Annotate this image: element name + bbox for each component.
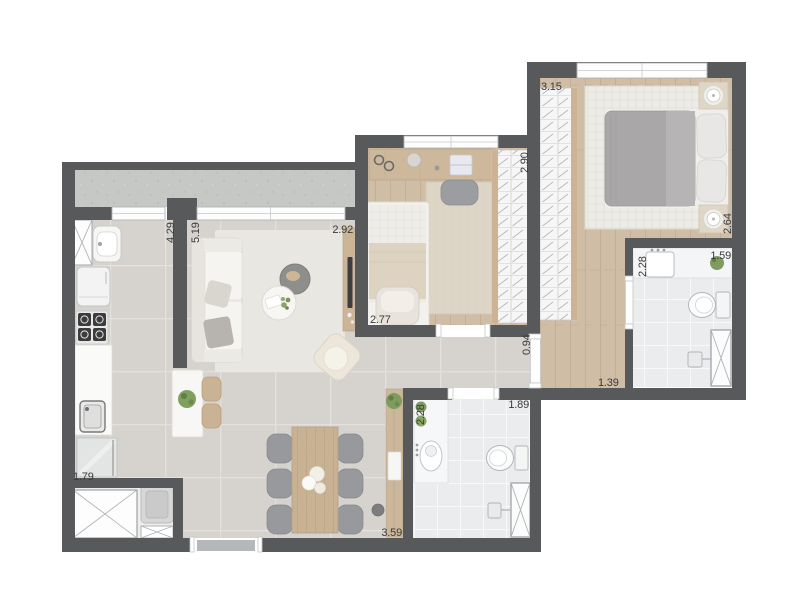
wall-pillar: [167, 198, 197, 220]
dim-master-width: 3.15: [541, 81, 562, 93]
dim-kitchen-width: 1.79: [73, 471, 94, 483]
master-window: [577, 63, 707, 78]
dim-bathroom-depth: 2.28: [415, 404, 427, 425]
shower-mixer-icon: [488, 503, 501, 518]
laundry-fixtures: [73, 484, 173, 538]
pillow: [696, 113, 727, 158]
bathroom-door-frame: [494, 388, 499, 399]
bedroom2-door-frame: [485, 324, 490, 337]
ensuite-toilet: [689, 292, 731, 318]
desk-chair: [441, 180, 478, 205]
single-bed: [366, 202, 429, 329]
wall-bedroom2-left: [355, 135, 368, 337]
entry-door-frame: [258, 537, 262, 552]
stool-dark: [372, 504, 384, 516]
sofa: [192, 238, 242, 362]
dim-hall-passage: 0.94: [521, 334, 533, 355]
dim-bedroom2-width: 2.77: [370, 314, 391, 326]
tv-panel: [343, 228, 356, 331]
wall-terrace-top: [62, 162, 368, 170]
dim-master-depth: 2.64: [722, 213, 734, 234]
dining-set: [267, 427, 363, 534]
wall-suite-divider: [527, 62, 540, 337]
wall-left: [62, 162, 75, 552]
desk: [369, 149, 493, 180]
wall-bathroom-left: [403, 388, 413, 552]
nightstand: [699, 82, 728, 109]
hall-door-frame: [529, 383, 541, 388]
floor-plan: 3.15 2.64 2.90 2.77 2.92 4.29 5.19 1.79 …: [0, 0, 800, 605]
ensuite-door-leaf: [626, 281, 634, 324]
dining-chair: [267, 505, 293, 534]
entry-door-frame: [190, 537, 194, 552]
plant-icon: [178, 390, 196, 408]
desk-item-mouse: [435, 166, 440, 171]
wall-ensuite-left: [625, 325, 633, 388]
dim-corridor-width: 1.39: [598, 377, 619, 389]
bathroom-toilet: [487, 446, 529, 471]
ensuite-door-frame: [625, 324, 633, 329]
wall-laundry-right: [173, 478, 183, 552]
shower-mixer-icon: [688, 352, 702, 367]
bedroom2-door-frame: [436, 324, 441, 337]
entry-door: [193, 539, 259, 552]
bathroom-door-frame: [448, 388, 453, 399]
dim-kitchen-depth: 4.29: [165, 222, 177, 243]
tv-icon: [348, 257, 353, 308]
dining-chair: [337, 434, 363, 463]
water-heater: [141, 484, 173, 523]
double-bed: [605, 109, 728, 208]
refrigerator: [77, 267, 110, 306]
dim-dining-width: 3.59: [381, 527, 402, 539]
dining-chair: [267, 469, 293, 498]
entry-mat: [197, 540, 255, 551]
pillow: [696, 160, 726, 203]
bedroom2-window: [404, 136, 498, 148]
dim-bathroom-width: 1.89: [508, 399, 529, 411]
terrace-floor: [75, 170, 355, 207]
wall-bottom: [259, 538, 541, 552]
wall-bathroom-right: [530, 400, 541, 552]
ensuite-door-frame: [625, 276, 633, 281]
dim-living-depth: 5.19: [190, 222, 202, 243]
dim-living-width: 2.92: [332, 224, 353, 236]
dim-ensuite-depth: 2.28: [637, 256, 649, 277]
dim-bedroom2-depth: 2.90: [519, 152, 531, 173]
dining-chair: [267, 434, 293, 463]
dining-chair: [337, 469, 363, 498]
wall-right: [732, 62, 746, 400]
sofa-pillow: [203, 316, 235, 349]
wall-ensuite-left: [625, 248, 633, 280]
master-wardrobe: [540, 88, 577, 320]
floor-plan-drawing: 3.15 2.64 2.90 2.77 2.92 4.29 5.19 1.79 …: [0, 0, 800, 605]
wall-hall-bottom: [498, 388, 746, 400]
ensuite-sink: [646, 252, 674, 277]
dim-ensuite-width: 1.59: [710, 250, 731, 262]
desk-item-bowl: [407, 153, 421, 167]
kitchen-counter: [75, 345, 112, 435]
bedroom2-furniture: [366, 149, 530, 329]
wall-ensuite-top: [625, 238, 732, 248]
living-window: [197, 207, 345, 220]
dining-chair: [337, 505, 363, 534]
cooktop: [76, 311, 108, 344]
kitchen-window: [112, 207, 165, 220]
plant-icon: [386, 393, 402, 409]
stool: [202, 377, 221, 401]
utility-sink: [93, 226, 121, 262]
wall-bedroom2-bottom: [356, 325, 438, 337]
stool: [202, 404, 221, 428]
bedroom2-wardrobe: [492, 150, 530, 323]
